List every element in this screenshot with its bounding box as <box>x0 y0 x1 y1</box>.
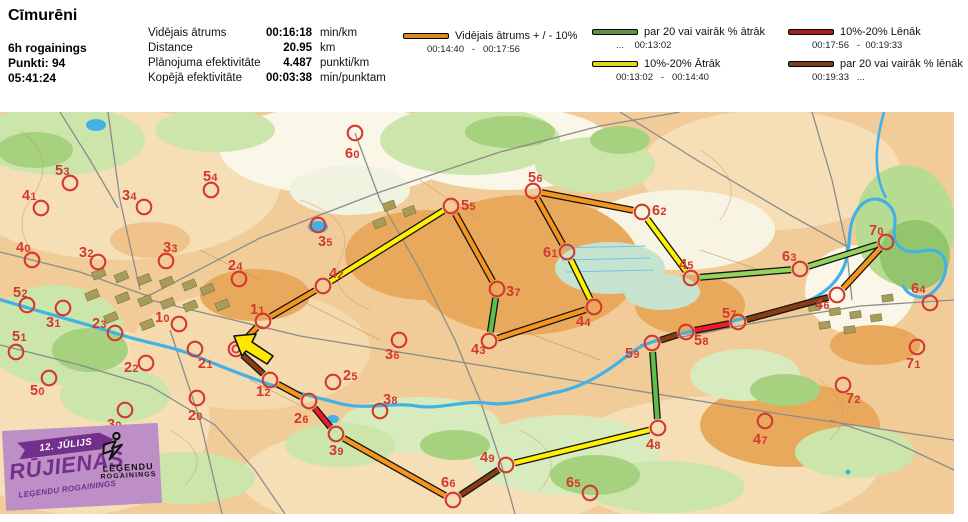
event-format: 6h rogainings <box>8 41 87 55</box>
logo-text-2: ROGAININGS <box>100 471 156 481</box>
control-label-60: 60 <box>345 146 360 162</box>
legend-swatch-orange <box>403 33 449 39</box>
control-label-10: 10 <box>155 310 170 326</box>
legend-swatch-green <box>592 29 638 35</box>
control-label-51: 51 <box>12 329 27 345</box>
control-label-21: 21 <box>198 356 213 372</box>
control-label-70: 70 <box>869 223 884 239</box>
control-label-57: 57 <box>722 306 737 322</box>
control-label-36: 36 <box>385 347 400 363</box>
control-label-53: 53 <box>55 163 70 179</box>
legend-range: ... 00:13:02 <box>616 40 765 51</box>
control-label-63: 63 <box>782 249 797 265</box>
points-total: Punkti: 94 <box>8 56 65 70</box>
legend-label: 10%-20% Lēnāk <box>840 26 921 38</box>
legend-faster: 10%-20% Ātrāk 00:13:02 - 00:14:40 <box>592 58 720 83</box>
control-label-62: 62 <box>652 203 667 219</box>
control-label-35: 35 <box>318 234 333 250</box>
legend-swatch-brown <box>788 61 834 67</box>
legend-much-slower: par 20 vai vairāk % lēnāk 00:19:33 ... <box>788 58 963 83</box>
legend-range: 00:14:40 - 00:17:56 <box>427 44 577 55</box>
control-label-66: 66 <box>441 475 456 491</box>
control-label-40: 40 <box>16 240 31 256</box>
legend-label: par 20 vai vairāk % lēnāk <box>840 58 963 70</box>
control-label-50: 50 <box>30 383 45 399</box>
control-label-71: 71 <box>906 356 921 372</box>
stat-label: Distance <box>148 42 193 54</box>
legend-swatch-red <box>788 29 834 35</box>
control-label-55: 55 <box>461 198 476 214</box>
control-label-20: 20 <box>188 408 203 424</box>
control-label-47: 47 <box>753 432 768 448</box>
control-label-43: 43 <box>471 342 486 358</box>
control-label-24: 24 <box>228 258 243 274</box>
control-label-41: 41 <box>22 188 37 204</box>
stat-unit: min/km <box>320 27 357 39</box>
legend-label: par 20 vai vairāk % ātrāk <box>644 26 765 38</box>
legend-slower: 10%-20% Lēnāk 00:17:56 - 00:19:33 <box>788 26 921 51</box>
control-label-59: 59 <box>625 346 640 362</box>
legend-swatch-yellow <box>592 61 638 67</box>
route-map: 1011122021222324252630313233343536373839… <box>0 112 954 514</box>
control-label-58: 58 <box>694 333 709 349</box>
control-label-46: 46 <box>815 297 830 313</box>
control-label-39: 39 <box>329 443 344 459</box>
control-label-37: 37 <box>506 284 521 300</box>
control-label-56: 56 <box>528 170 543 186</box>
control-label-49: 49 <box>480 450 495 466</box>
stat-value: 00:03:38 <box>246 72 312 84</box>
control-label-12: 12 <box>256 384 271 400</box>
stat-unit: punkti/km <box>320 57 369 69</box>
control-label-45: 45 <box>679 257 694 273</box>
legend-label: 10%-20% Ātrāk <box>644 58 720 70</box>
control-label-44: 44 <box>576 314 591 330</box>
control-label-42: 42 <box>329 266 344 282</box>
control-label-72: 72 <box>846 391 861 407</box>
control-label-25: 25 <box>343 368 358 384</box>
stat-value: 00:16:18 <box>246 27 312 39</box>
event-banner: 12. JŪLIJS RŪJIENAS LEĢENDU ROGAININGS L… <box>2 423 162 511</box>
control-label-54: 54 <box>203 169 218 185</box>
legend-range: 00:17:56 - 00:19:33 <box>812 40 921 51</box>
control-label-33: 33 <box>163 240 178 256</box>
stat-value: 20.95 <box>246 42 312 54</box>
stat-unit: km <box>320 42 335 54</box>
legend-range: 00:19:33 ... <box>812 72 963 83</box>
control-label-61: 61 <box>543 245 558 261</box>
control-label-34: 34 <box>122 188 137 204</box>
legend-range: 00:13:02 - 00:14:40 <box>616 72 720 83</box>
control-label-48: 48 <box>646 437 661 453</box>
route-leg-59-48 <box>653 352 658 419</box>
control-label-52: 52 <box>13 285 28 301</box>
control-label-38: 38 <box>383 392 398 408</box>
event-logo: LEĢENDU ROGAININGS <box>98 429 156 481</box>
runner-icon <box>98 431 128 464</box>
control-label-11: 11 <box>250 302 265 318</box>
stat-label: Vidējais ātrums <box>148 27 226 39</box>
control-label-26: 26 <box>294 411 309 427</box>
stat-label: Plānojuma efektivitāte <box>148 57 261 69</box>
stat-label: Kopējā efektivitāte <box>148 72 242 84</box>
control-label-64: 64 <box>911 281 926 297</box>
legend-average: Vidējais ātrums + / - 10% 00:14:40 - 00:… <box>403 30 577 55</box>
control-label-32: 32 <box>79 245 94 261</box>
control-label-23: 23 <box>92 316 107 332</box>
stat-unit: min/punktam <box>320 72 386 84</box>
legend-label: Vidējais ātrums + / - 10% <box>455 30 577 42</box>
control-label-65: 65 <box>566 475 581 491</box>
elapsed-time: 05:41:24 <box>8 71 56 85</box>
control-label-31: 31 <box>46 315 61 331</box>
control-label-22: 22 <box>124 360 139 376</box>
header: Cīmurēni 6h rogainings Punkti: 94 05:41:… <box>0 0 968 112</box>
stat-value: 4.487 <box>246 57 312 69</box>
page-title: Cīmurēni <box>8 7 77 25</box>
legend-much-faster: par 20 vai vairāk % ātrāk ... 00:13:02 <box>592 26 765 51</box>
